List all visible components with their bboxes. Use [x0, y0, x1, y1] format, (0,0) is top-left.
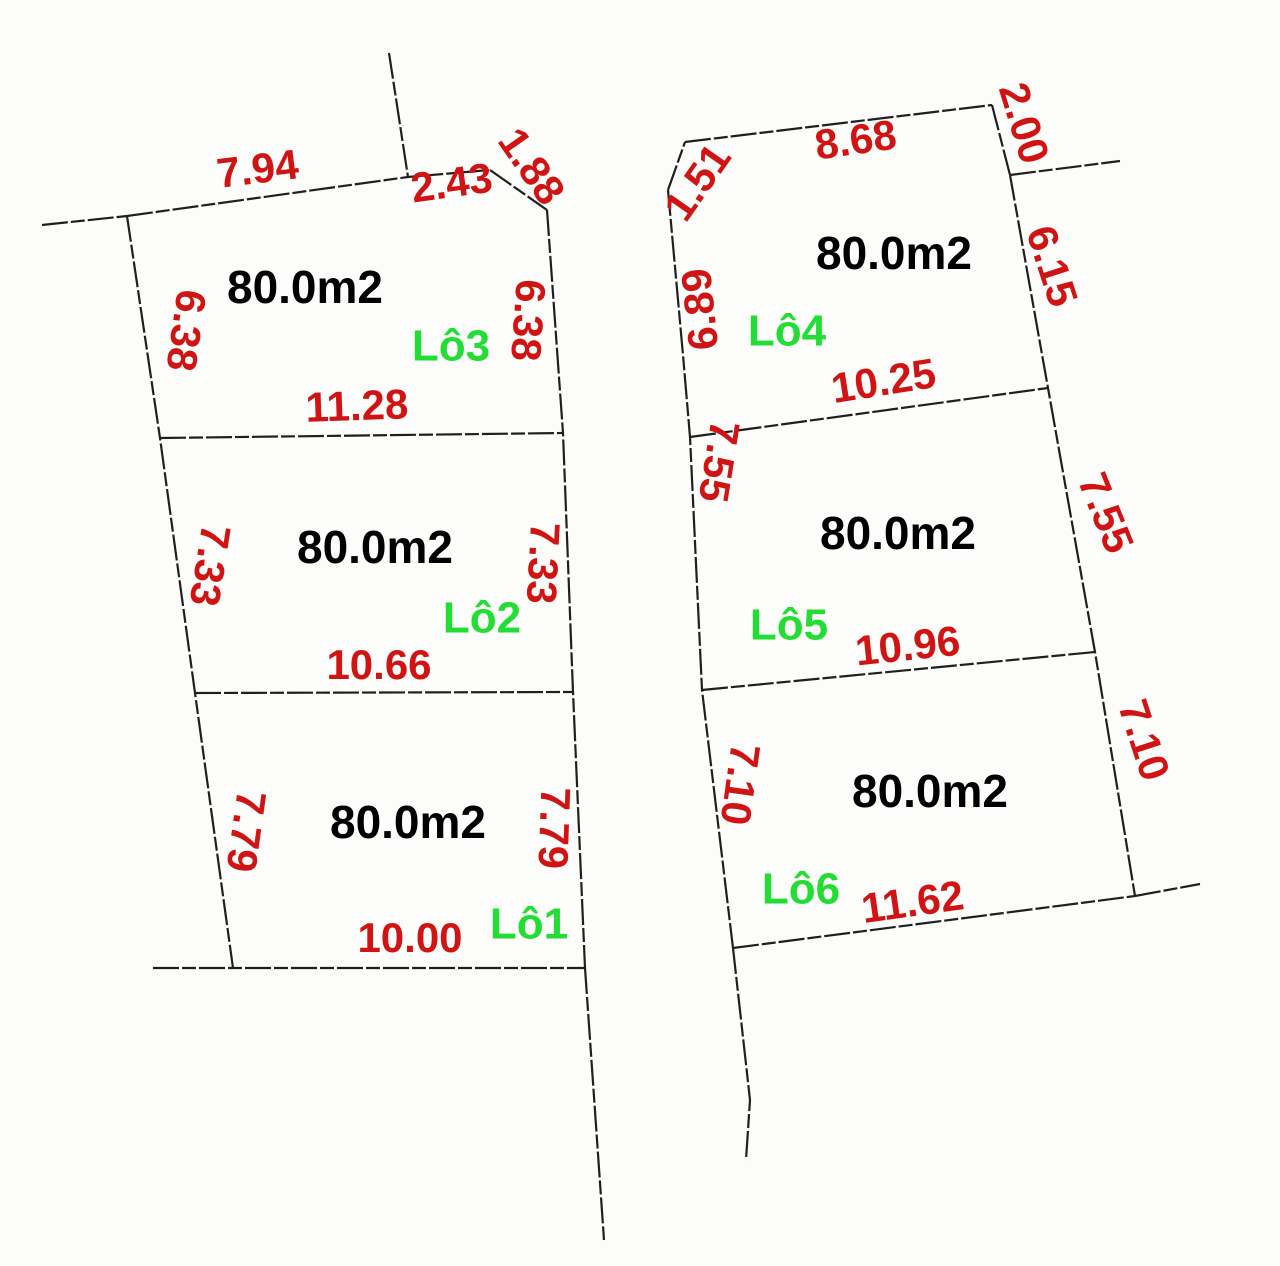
extension-top-vertical	[389, 53, 408, 177]
dimension-label-14: 7.79	[529, 786, 579, 869]
extension-bottom-right	[1135, 884, 1200, 896]
dimension-label-32: 7.10	[1109, 694, 1179, 786]
dimension-label-26: 7.55	[690, 417, 749, 505]
dimension-label-3: 6.38	[157, 287, 215, 374]
dimension-label-13: 7.79	[217, 788, 275, 875]
area-label-22: 80.0m2	[816, 227, 972, 279]
area-label-28: 80.0m2	[820, 507, 976, 559]
extension-left-east-south	[585, 968, 604, 1240]
lot-name-label-16: Lô1	[490, 900, 568, 949]
area-label-15: 80.0m2	[330, 796, 486, 848]
plot-map-svg: 7.942.431.886.386.3880.0m2Lô311.287.337.…	[0, 0, 1280, 1266]
lot-name-label-11: Lô2	[443, 594, 521, 643]
dimension-label-25: 10.25	[828, 349, 939, 412]
dimension-label-24: 6.15	[1017, 220, 1087, 312]
dimension-label-31: 7.10	[711, 741, 769, 828]
area-label-33: 80.0m2	[852, 765, 1008, 817]
dimension-label-21: 6.89	[672, 266, 727, 352]
dimension-label-20: 2.00	[990, 77, 1059, 169]
extension-road-west	[42, 216, 127, 225]
dimension-label-27: 7.55	[1069, 466, 1143, 559]
area-label-5: 80.0m2	[227, 261, 383, 313]
lot-name-label-29: Lô5	[750, 601, 828, 650]
lot-name-label-6: Lô3	[412, 322, 490, 371]
extension-right-west-south	[733, 948, 750, 1160]
dimension-label-19: 8.68	[812, 111, 899, 169]
area-label-10: 80.0m2	[297, 521, 453, 573]
dimension-label-7: 11.28	[305, 380, 409, 431]
divider-lot3-lot2	[160, 433, 563, 438]
lot-name-label-23: Lô4	[748, 307, 827, 356]
dimension-label-12: 10.66	[326, 641, 431, 688]
dimension-label-9: 7.33	[518, 521, 569, 605]
dimension-label-8: 7.33	[181, 521, 240, 609]
dimension-label-18: 1.51	[655, 135, 740, 229]
dimension-label-0: 7.94	[214, 140, 301, 197]
dimension-label-2: 1.88	[489, 119, 574, 213]
lot-name-label-34: Lô6	[762, 865, 840, 914]
parcel-labels: 7.942.431.886.386.3880.0m2Lô311.287.337.…	[157, 77, 1179, 961]
cadastral-plot-map: 7.942.431.886.386.3880.0m2Lô311.287.337.…	[0, 0, 1280, 1266]
dimension-label-1: 2.43	[408, 154, 495, 212]
divider-lot2-lot1	[195, 692, 573, 693]
dimension-label-4: 6.38	[502, 278, 555, 363]
dimension-label-35: 11.62	[858, 871, 966, 932]
dimension-label-17: 10.00	[357, 914, 462, 961]
